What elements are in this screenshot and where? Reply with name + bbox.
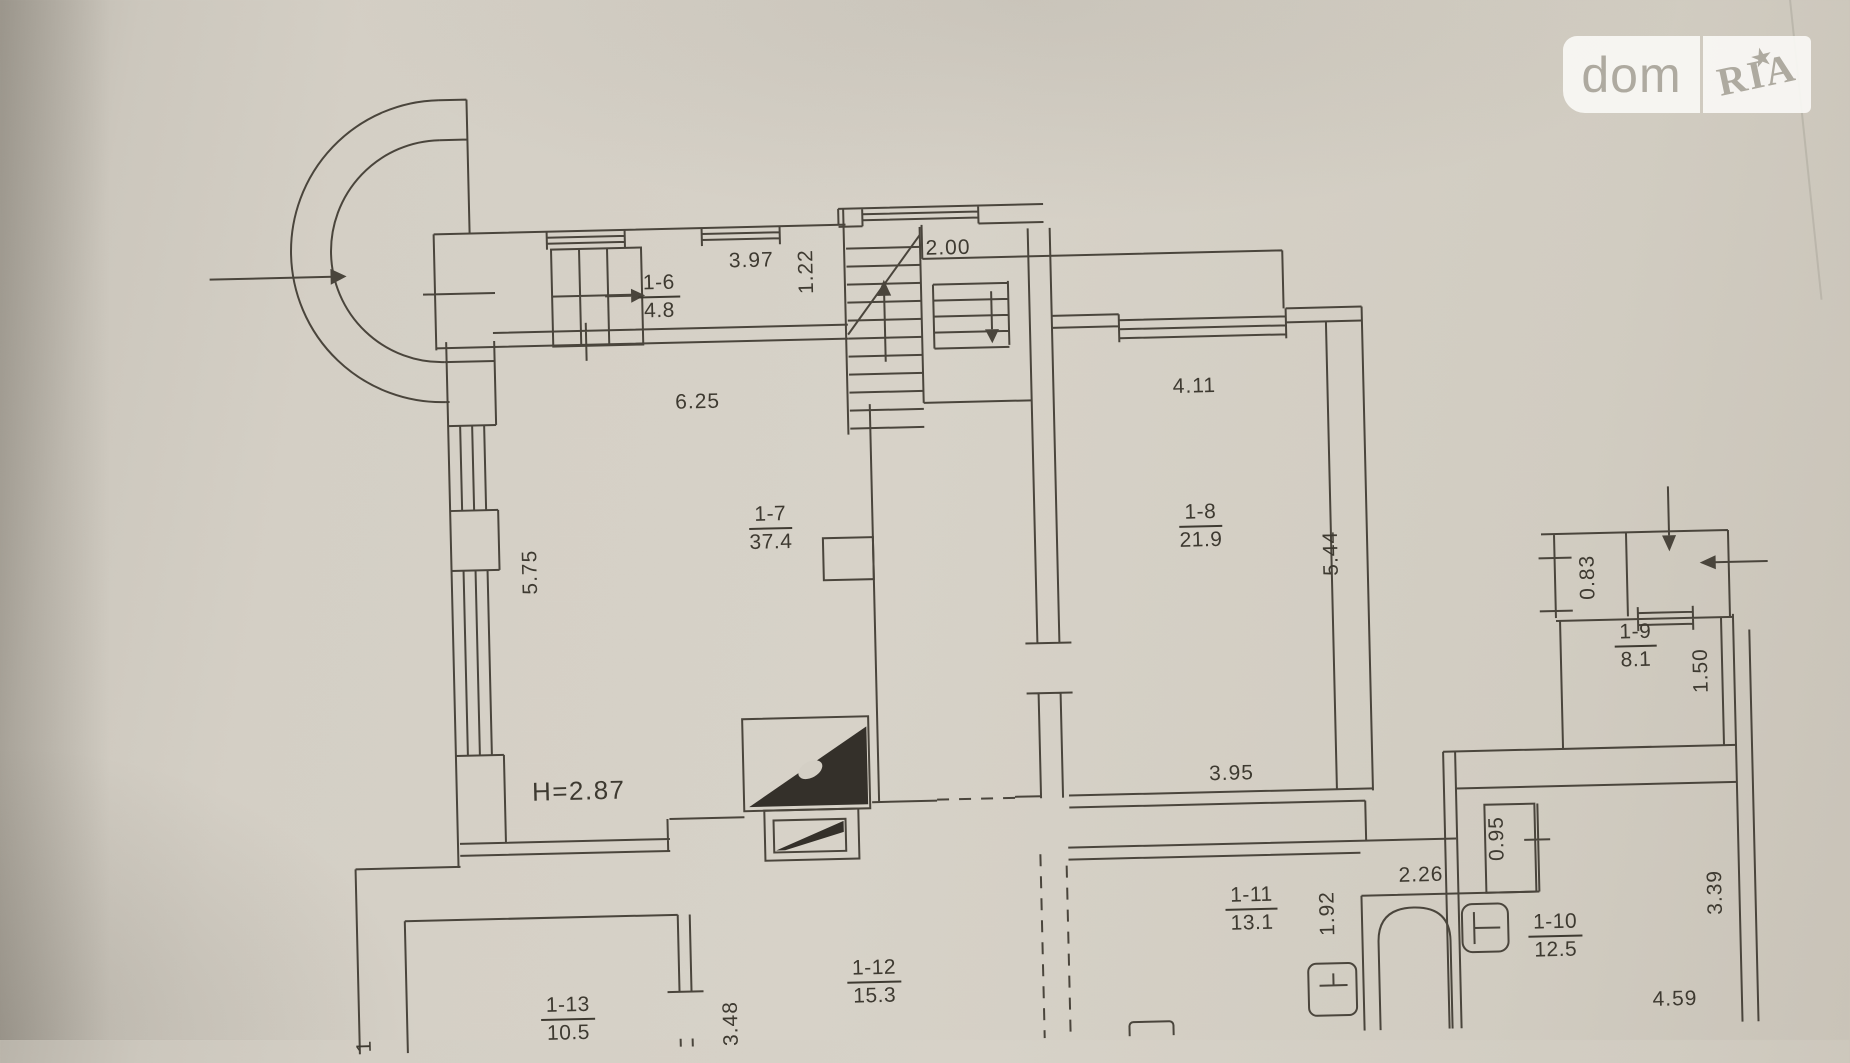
room-area: 15.3 [847, 983, 902, 1008]
room-area: 37.4 [749, 529, 792, 554]
dimension-6.25: 6.25 [675, 390, 720, 415]
room-area: 12.5 [1528, 937, 1583, 962]
dimension-3.97: 3.97 [729, 248, 774, 273]
dimension-3.48: 3.48 [719, 1001, 744, 1046]
dimension-4.11: 4.11 [1172, 374, 1216, 399]
dimension-3.95: 3.95 [1209, 761, 1254, 786]
dimension-2.26: 2.26 [1398, 863, 1443, 888]
dimension-0.83: 0.83 [1575, 555, 1600, 600]
room-number: 1-9 [1614, 621, 1656, 648]
dimension-1.22: 1.22 [794, 249, 819, 294]
room-label-1-12: 1-1215.3 [847, 957, 902, 1008]
room-label-1-13: 1-1310.5 [541, 994, 596, 1045]
room-area: 13.1 [1226, 910, 1279, 935]
dimension-5.44: 5.44 [1319, 531, 1344, 576]
watermark: dom RIA ★ [1563, 36, 1811, 113]
dimension-1.50: 1.50 [1689, 648, 1714, 693]
room-area: 4.8 [638, 298, 680, 323]
dimension-3.39: 3.39 [1703, 870, 1728, 915]
room-label-1-11: 1-1113.1 [1225, 884, 1279, 935]
dimension-4.59: 4.59 [1652, 987, 1697, 1012]
dimension-0.95: 0.95 [1485, 816, 1510, 861]
dimension-2.00: 2.00 [925, 236, 970, 261]
floor-plan-drawing: 1-64.81-737.41-821.91-98.11-1012.51-1113… [0, 0, 1850, 1063]
room-number: 1-12 [847, 957, 902, 984]
watermark-dom: dom [1563, 36, 1700, 113]
room-number: 1-10 [1528, 910, 1583, 937]
watermark-ria-logo: RIA ★ [1703, 36, 1811, 113]
dimension-1: 1 [353, 1040, 377, 1053]
room-number: 1-8 [1179, 501, 1222, 528]
room-label-1-8: 1-821.9 [1179, 501, 1223, 552]
room-number: 1-13 [541, 994, 596, 1021]
room-label-1-10: 1-1012.5 [1528, 910, 1583, 961]
room-label-1-9: 1-98.1 [1614, 621, 1657, 672]
dimension-1.92: 1.92 [1315, 891, 1340, 936]
room-label-1-6: 1-64.8 [638, 272, 681, 323]
room-area: 10.5 [541, 1020, 596, 1045]
room-number: 1-6 [638, 272, 680, 299]
dimension-H=2.87: H=2.87 [532, 775, 626, 808]
room-label-1-7: 1-737.4 [749, 503, 793, 554]
room-area: 21.9 [1179, 527, 1222, 552]
room-area: 8.1 [1615, 647, 1657, 672]
labels-layer: 1-64.81-737.41-821.91-98.11-1012.51-1113… [0, 0, 1850, 1063]
room-number: 1-7 [749, 503, 792, 530]
room-number: 1-11 [1225, 884, 1278, 911]
dimension-5.75: 5.75 [518, 549, 543, 594]
photo-of-floor-plan: { "watermark": { "left": "dom", "right":… [0, 0, 1850, 1040]
